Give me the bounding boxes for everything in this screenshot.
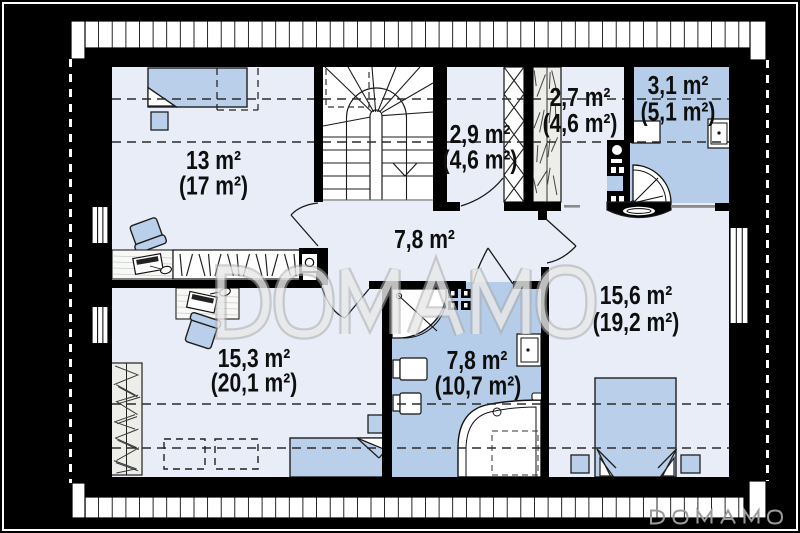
svg-text:(20,1 m²): (20,1 m²) xyxy=(211,370,298,399)
svg-text:13 m²: 13 m² xyxy=(186,147,241,176)
svg-text:2,9 m²: 2,9 m² xyxy=(450,121,511,150)
svg-text:(4,6 m²): (4,6 m²) xyxy=(443,147,518,176)
svg-text:7,8 m²: 7,8 m² xyxy=(394,226,455,255)
svg-text:7,8 m²: 7,8 m² xyxy=(447,347,508,376)
svg-text:2,7 m²: 2,7 m² xyxy=(550,84,611,113)
svg-text:(17 m²): (17 m²) xyxy=(179,173,248,202)
svg-text:(10,7 m²): (10,7 m²) xyxy=(435,373,522,402)
svg-text:15,6 m²: 15,6 m² xyxy=(600,282,673,311)
svg-text:(4,6 m²): (4,6 m²) xyxy=(543,110,618,139)
svg-text:3,1 m²: 3,1 m² xyxy=(648,72,709,101)
svg-text:(19,2 m²): (19,2 m²) xyxy=(593,309,680,338)
svg-text:(5,1 m²): (5,1 m²) xyxy=(641,99,716,128)
